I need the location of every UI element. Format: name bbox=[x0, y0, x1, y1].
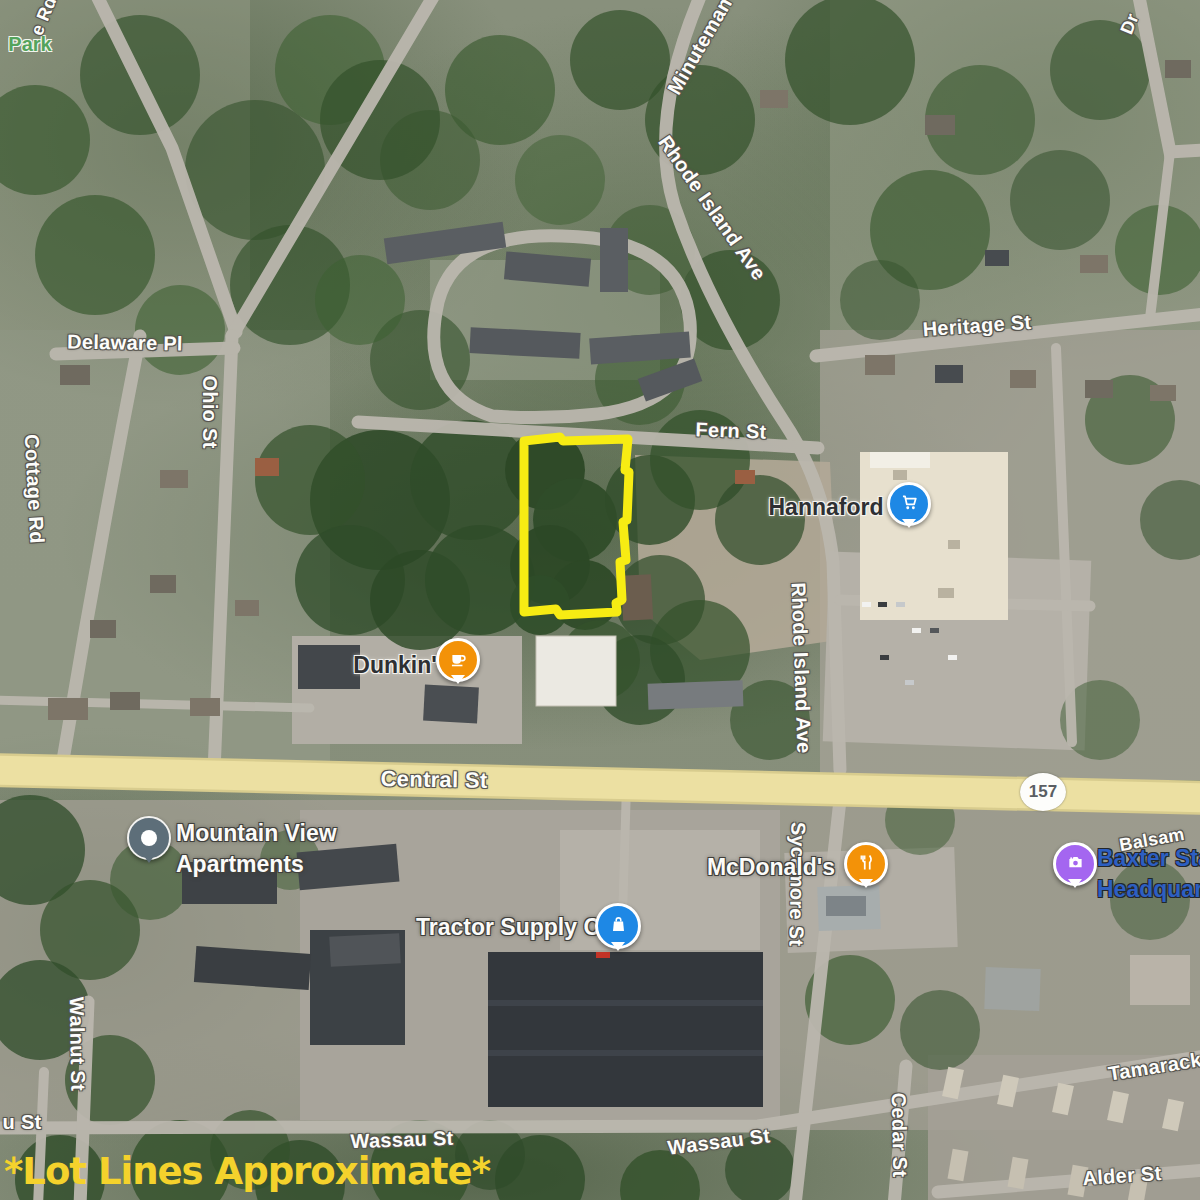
street-label-sycamore-st: Sycamore St bbox=[784, 822, 809, 947]
baxter-state-headquarters-pin[interactable] bbox=[1053, 842, 1097, 886]
baxter-state-headquarters-label: Baxter Sta Headquar bbox=[1097, 843, 1200, 905]
mountain-view-apartments-label: Mountain View Apartments bbox=[176, 818, 337, 880]
mcdonalds-pin[interactable] bbox=[844, 842, 888, 886]
fork-knife-icon bbox=[856, 852, 877, 877]
street-label-wassau-st-fragment: u St bbox=[3, 1111, 42, 1134]
coffee-cup-icon bbox=[448, 648, 469, 673]
route-157-shield: 157 bbox=[1020, 773, 1066, 811]
hannaford-label: Hannaford bbox=[769, 494, 884, 521]
street-label-cedar-st: Cedar St bbox=[887, 1092, 911, 1177]
street-label-central-st: Central St bbox=[380, 766, 487, 794]
shopping-cart-icon bbox=[899, 492, 920, 517]
dunkin-pin[interactable] bbox=[436, 638, 480, 682]
lot-lines-disclaimer: *Lot Lines Approximate* bbox=[4, 1150, 490, 1193]
street-label-walnut-st: Walnut St bbox=[65, 997, 90, 1092]
tractor-supply-pin[interactable] bbox=[595, 903, 641, 949]
satellite-map[interactable]: Park e Rd Minuteman Dr Rhode Island Ave … bbox=[0, 0, 1200, 1200]
lodging-dot-icon bbox=[141, 830, 157, 846]
street-label-delaware-pl: Delaware Pl bbox=[67, 330, 183, 355]
street-label-ohio-st: Ohio St bbox=[198, 375, 221, 448]
satellite-imagery bbox=[0, 0, 1200, 1200]
dunkin-label: Dunkin' bbox=[353, 652, 436, 679]
mcdonalds-label: McDonald's bbox=[707, 854, 835, 881]
route-157-number: 157 bbox=[1029, 782, 1057, 802]
street-label-fern-st: Fern St bbox=[695, 418, 767, 443]
tractor-supply-label: Tractor Supply Co bbox=[416, 914, 614, 941]
shopping-bag-icon bbox=[608, 914, 629, 939]
mountain-view-apartments-pin[interactable] bbox=[127, 816, 171, 860]
camera-icon bbox=[1065, 852, 1086, 877]
hannaford-pin[interactable] bbox=[887, 482, 931, 526]
